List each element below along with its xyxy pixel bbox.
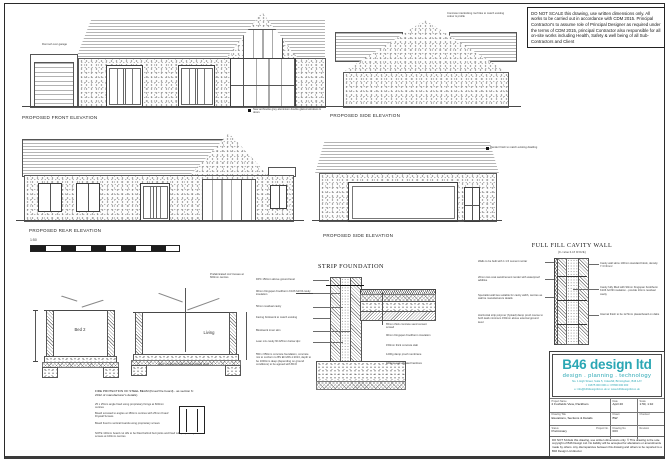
- wall-tie: [557, 324, 587, 325]
- truss-line: [82, 297, 111, 307]
- truss-line: [187, 294, 229, 310]
- rear-gable-glazing: [202, 179, 256, 221]
- side-door: [464, 187, 480, 222]
- project-name-cell: Project Name 2 Foxfields View, Packham: [550, 399, 610, 412]
- room-label: Bed 2: [60, 327, 100, 332]
- inner-block-leaf: [578, 258, 589, 345]
- leader-line: [545, 279, 554, 280]
- window: [38, 183, 62, 212]
- project-no-label: Project No.: [596, 427, 608, 430]
- wall-tie: [557, 300, 587, 301]
- ground-line: [329, 106, 521, 107]
- scale-bar: [30, 245, 180, 252]
- rear-elevation-drawing: [22, 133, 294, 225]
- cdm-note-text: DO NOT SCALE this drawing, use written d…: [531, 11, 661, 45]
- leader-line: [588, 264, 599, 265]
- subsoil-hatch: [316, 381, 406, 390]
- scale-label: 1:50: [30, 238, 37, 242]
- cavity-wall-detail: FULL FILL CAVITY WALL (U-value 0.18 W/m²…: [478, 243, 666, 343]
- copyright-disclaimer: DO NOT SCALE this drawing, use written d…: [550, 436, 664, 455]
- footing: [225, 365, 241, 376]
- wall-section: [107, 310, 115, 358]
- garage-door-panel: [352, 186, 455, 219]
- door-leaf: [123, 68, 140, 105]
- garage-roof: [315, 142, 499, 173]
- wall-note: Specialist wall ties suitable for cavity…: [478, 294, 544, 301]
- drawn-value: BW: [613, 417, 636, 421]
- leader-line: [313, 293, 340, 294]
- note-flag-icon: [248, 109, 251, 112]
- internal-dimension-line: [185, 288, 186, 352]
- floor-note: 150mm thick concrete slab: [386, 344, 434, 347]
- checked-cell: Checked: [637, 413, 664, 426]
- company-logo-box: B46 design ltd design . planning . techn…: [552, 354, 662, 397]
- wall-note: Cavity fully filled with 90mm Kingspan K…: [600, 286, 662, 296]
- date-cell: Date April 20: [610, 399, 637, 412]
- roof-section: [42, 283, 117, 310]
- leader-line: [573, 289, 599, 290]
- dpc-line: [326, 285, 364, 286]
- cavity-wall-subtitle: (U-value 0.18 W/m²K): [502, 251, 642, 254]
- strip-foundation-detail: STRIP FOUNDATION DPC 150mm above ground …: [256, 263, 434, 390]
- foundation-note: 50mm residual cavity: [256, 305, 312, 308]
- roof-annotation: Prefabricated roof trusses at 600mm cent…: [210, 273, 244, 280]
- side-elevation-top-drawing: Concrete interlocking roof tiles to matc…: [335, 18, 515, 110]
- floor-note: 65mm thick concrete sand cement screed: [386, 323, 434, 330]
- wall-note: Horizontal strip polymer (hyload) damp p…: [478, 314, 544, 324]
- note-flag-icon: [486, 147, 489, 150]
- cavity-wall-title: FULL FILL CAVITY WALL: [502, 243, 642, 249]
- scale-value: 1:50, 1:10: [640, 403, 663, 407]
- fire-note: Board screwed to angles at 150mm centres…: [95, 412, 173, 419]
- drawing-title-value: Elevations, Sections & Details: [552, 417, 609, 421]
- window: [76, 183, 100, 212]
- drawing-title-cell: Drawing Title Elevations, Sections & Det…: [550, 413, 610, 426]
- wall-section: [135, 312, 143, 356]
- door-leaf: [153, 186, 167, 219]
- ground-line: [312, 220, 502, 221]
- wall-section: [229, 312, 237, 356]
- drawing-sheet: DO NOT SCALE this drawing, use written d…: [0, 0, 670, 467]
- leader-line-vertical: [382, 292, 383, 325]
- front-elevation-label: PROPOSED FRONT ELEVATION: [22, 115, 97, 120]
- door-leaf: [195, 68, 212, 105]
- status-value: Preliminary: [552, 430, 609, 434]
- floor-note: 90mm Kingspan Kooltherm insulation: [386, 334, 434, 337]
- foundation-note: Facing brickwork to match existing: [256, 316, 312, 319]
- side-elevation-mid-drawing: Render finish to match existing dwelling: [312, 140, 502, 225]
- table-row: Drawing Title Elevations, Sections & Det…: [550, 412, 664, 426]
- rear-french-doors: [140, 183, 170, 221]
- company-web: e: info@b46designltd.co.uk w: www.b46des…: [553, 388, 661, 392]
- wall-note: Internal finish to be 12.5mm plasterboar…: [600, 313, 662, 316]
- wall-section: [46, 310, 54, 358]
- beam-web-line: [186, 409, 187, 432]
- floor-note: 1200g damp proof membrane: [386, 353, 434, 356]
- foundation-note: 550 x 650mm concrete foundation, concret…: [256, 353, 312, 367]
- wall-note: 20mm two coat sand/cement render with wa…: [478, 276, 544, 283]
- truss-line: [49, 291, 78, 301]
- roof-tiles-annotation: Concrete interlocking roof tiles to matc…: [447, 12, 505, 19]
- footing: [42, 367, 58, 378]
- strip-foundation-title: STRIP FOUNDATION: [286, 263, 416, 270]
- project-name-value: 2 Foxfields View, Packham: [552, 403, 609, 407]
- gable-apex-glazing: [243, 29, 282, 60]
- ground-line: [16, 220, 304, 221]
- foundation-note: DPC 150mm above ground level: [256, 278, 312, 281]
- foundation-note: Lean mix cavity fill 225mm below dpc: [256, 340, 312, 343]
- revision-label: Revision: [640, 427, 650, 430]
- dimension-tick: [33, 361, 38, 362]
- scale-cell: Scale 1:50, 1:10: [637, 399, 664, 412]
- garage-door: [34, 62, 74, 107]
- fire-note-title: FIRE PROTECTION OF STEEL BEAM (Knauf fir…: [95, 390, 195, 398]
- leader-line: [588, 315, 599, 316]
- fire-note: Board fixed to vertical boards using pro…: [95, 422, 173, 425]
- french-doors-1: [106, 65, 143, 107]
- render-annotation: Render finish to match existing dwelling: [490, 146, 546, 149]
- leader-line: [545, 297, 554, 298]
- footing: [103, 367, 119, 378]
- title-block: B46 design ltd design . planning . techn…: [549, 351, 665, 457]
- leader-line: [313, 280, 329, 281]
- garage-door-wide: [348, 182, 458, 222]
- fire-protection-notes: FIRE PROTECTION OF STEEL BEAM (Knauf fir…: [95, 390, 210, 452]
- leader-line: [313, 331, 350, 332]
- foundation-note: Blockwork inner skin: [256, 329, 312, 332]
- french-doors-2: [178, 65, 215, 107]
- wall-note: Cavity wall skins 100mm standard block, …: [600, 262, 662, 269]
- side-wall-render: [343, 72, 509, 108]
- section-bed2-drawing: Bed 2: [42, 283, 117, 378]
- side-elevation-top-label: PROPOSED SIDE ELEVATION: [330, 113, 400, 118]
- table-row: Project Name 2 Foxfields View, Packham D…: [550, 398, 664, 412]
- leader-line: [313, 307, 343, 308]
- front-elevation-drawing: Flat roof over garage New anthracite gre…: [30, 12, 325, 112]
- leader-line: [313, 318, 330, 319]
- dimension-line: [35, 310, 36, 362]
- drawing-no-value: 003: [613, 430, 636, 434]
- wall-note: Walls to be built with 1:1:6 cement mort…: [478, 260, 544, 263]
- side-elevation-mid-label: PROPOSED SIDE ELEVATION: [323, 233, 393, 238]
- room-label: Living: [192, 330, 226, 335]
- leader-line: [313, 342, 343, 343]
- section-living-drawing: Living Prefabricated roof trusses at 600…: [130, 276, 240, 378]
- drawn-cell: Drawn BW: [610, 413, 637, 426]
- ground-line: [22, 106, 334, 107]
- checked-label: Checked: [640, 413, 650, 416]
- garage-annotation: Flat roof over garage: [42, 43, 76, 46]
- floor-annotation: Floor construction as strip foundation d…: [158, 363, 212, 366]
- beam-web-line: [197, 409, 198, 432]
- gable-full-height-glazing: [230, 58, 296, 107]
- steel-beam-diagram: [179, 406, 205, 434]
- floor-note: 150mm well vibrated hardcore: [386, 362, 434, 365]
- truss-line: [141, 286, 183, 302]
- dimension-tick: [33, 310, 38, 311]
- cdm-note-box: DO NOT SCALE this drawing, use written d…: [527, 7, 665, 48]
- wall-tie: [557, 276, 587, 277]
- dimension-line: [246, 312, 247, 360]
- title-block-table: Project Name 2 Foxfields View, Packham D…: [550, 398, 664, 439]
- company-tagline: design . planning . technology: [553, 373, 661, 379]
- rear-elevation-label: PROPOSED REAR ELEVATION: [29, 228, 101, 233]
- foundation-note: 90mm Kingspan Kooltherm K106 full fill c…: [256, 290, 312, 297]
- windows-annotation: New anthracite grey aluminium double gla…: [253, 108, 325, 115]
- window-small: [270, 185, 287, 209]
- ceiling-line: [44, 310, 115, 311]
- company-name: B46 design ltd: [553, 358, 661, 372]
- leader-line: [545, 262, 554, 263]
- fire-note: 25 x 25mm angle fixed using proprietary …: [95, 403, 173, 410]
- footing: [131, 365, 147, 376]
- date-value: April 20: [613, 403, 636, 407]
- hardcore-layer: [360, 311, 436, 321]
